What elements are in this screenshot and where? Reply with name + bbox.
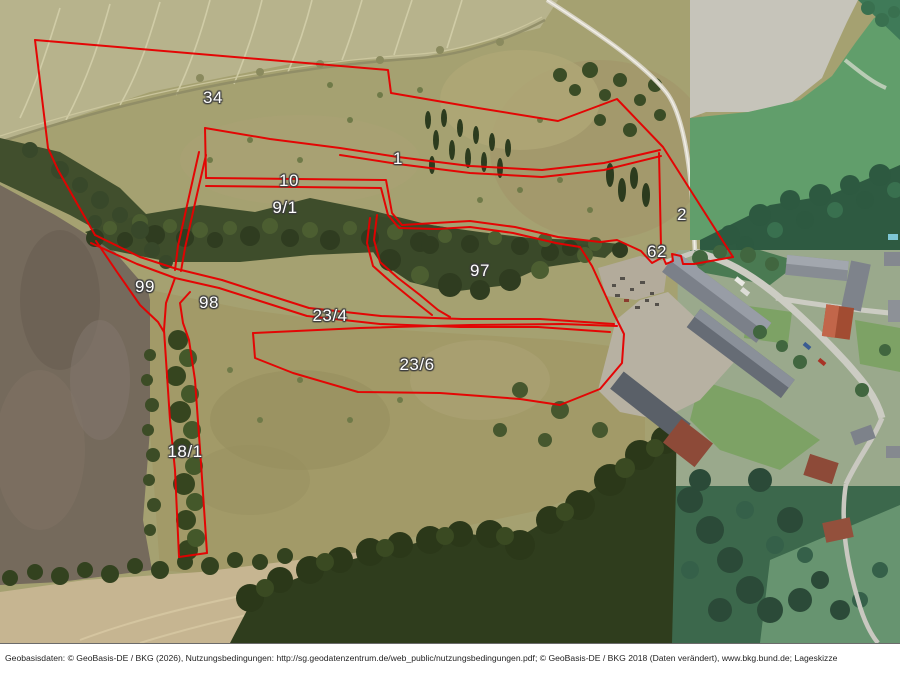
parcel-label-10: 10 <box>279 171 299 191</box>
parcel-label-18-1: 18/1 <box>167 442 202 462</box>
copyright-footer: Geobasisdaten: © GeoBasis-DE / BKG (2026… <box>0 643 900 674</box>
copyright-text: Geobasisdaten: © GeoBasis-DE / BKG (2026… <box>5 653 837 663</box>
parcel-label-34: 34 <box>203 88 223 108</box>
parcel-label-62: 62 <box>647 242 667 262</box>
lageskizze-page: 34 1 10 9/1 2 62 97 99 98 23/4 23/6 18/1… <box>0 0 900 675</box>
parcel-label-97: 97 <box>470 261 490 281</box>
parcel-label-2: 2 <box>677 205 687 225</box>
parcel-label-98: 98 <box>199 293 219 313</box>
aerial-map: 34 1 10 9/1 2 62 97 99 98 23/4 23/6 18/1 <box>0 0 900 643</box>
parcel-label-1: 1 <box>393 149 403 169</box>
aerial-scene <box>0 0 900 643</box>
parcel-label-23-6: 23/6 <box>399 355 434 375</box>
boundary-vertical <box>205 128 206 177</box>
parcel-label-99: 99 <box>135 277 155 297</box>
parcel-label-9-1: 9/1 <box>272 198 297 218</box>
parcel-label-23-4: 23/4 <box>312 306 347 326</box>
